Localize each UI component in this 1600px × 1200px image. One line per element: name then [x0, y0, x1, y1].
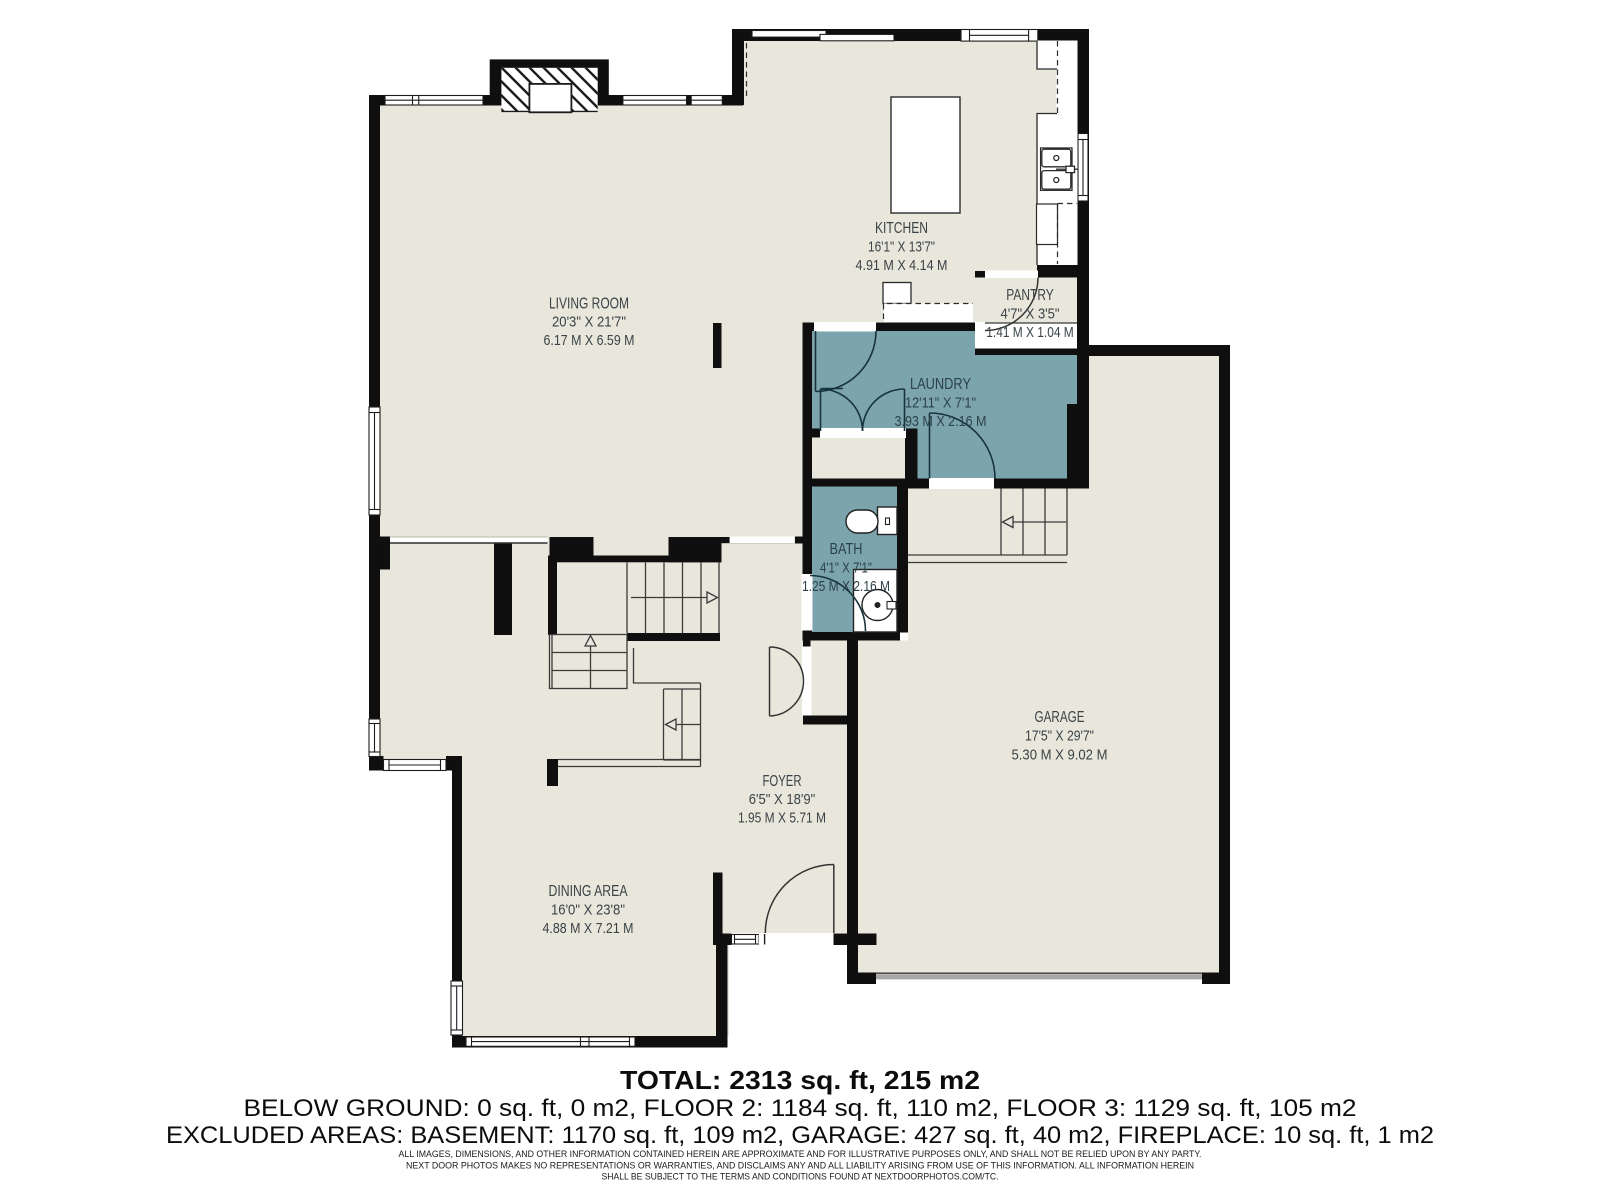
svg-text:TOTAL: 2313 sq. ft, 215 m2: TOTAL: 2313 sq. ft, 215 m2 — [620, 1065, 980, 1095]
svg-text:16'0" X 23'8": 16'0" X 23'8" — [551, 902, 625, 919]
svg-text:4.88 M X 7.21 M: 4.88 M X 7.21 M — [543, 920, 634, 937]
svg-text:GARAGE: GARAGE — [1035, 709, 1085, 726]
svg-text:FOYER: FOYER — [763, 773, 802, 790]
svg-text:4'7" X 3'5": 4'7" X 3'5" — [1001, 306, 1060, 323]
svg-text:1.41 M X 1.04 M: 1.41 M X 1.04 M — [986, 324, 1074, 341]
svg-text:17'5" X 29'7": 17'5" X 29'7" — [1025, 728, 1094, 745]
svg-text:BELOW GROUND: 0 sq. ft, 0 m2,: BELOW GROUND: 0 sq. ft, 0 m2, FLOOR 2: 1… — [244, 1095, 1357, 1122]
svg-text:5.30 M X 9.02 M: 5.30 M X 9.02 M — [1012, 747, 1108, 764]
svg-text:LAUNDRY: LAUNDRY — [910, 376, 971, 393]
svg-text:4.91 M X 4.14 M: 4.91 M X 4.14 M — [856, 257, 948, 274]
svg-text:BATH: BATH — [830, 541, 863, 558]
svg-text:3.93 M X 2.16 M: 3.93 M X 2.16 M — [895, 413, 987, 430]
svg-text:4'1" X 7'1": 4'1" X 7'1" — [820, 560, 872, 577]
svg-text:NEXT DOOR PHOTOS MAKES NO REPR: NEXT DOOR PHOTOS MAKES NO REPRESENTATION… — [406, 1161, 1194, 1171]
svg-text:ALL IMAGES, DIMENSIONS, AND OT: ALL IMAGES, DIMENSIONS, AND OTHER INFORM… — [399, 1149, 1202, 1159]
svg-text:6'5" X 18'9": 6'5" X 18'9" — [749, 791, 816, 808]
svg-text:20'3" X 21'7": 20'3" X 21'7" — [552, 314, 626, 331]
svg-text:KITCHEN: KITCHEN — [875, 220, 928, 237]
svg-text:1.95 M X 5.71 M: 1.95 M X 5.71 M — [738, 810, 826, 827]
svg-text:DINING AREA: DINING AREA — [549, 883, 628, 900]
svg-text:12'11" X 7'1": 12'11" X 7'1" — [905, 395, 976, 412]
svg-text:PANTRY: PANTRY — [1006, 287, 1054, 304]
svg-text:6.17 M X 6.59 M: 6.17 M X 6.59 M — [544, 332, 635, 349]
svg-text:1.25 M X 2.16 M: 1.25 M X 2.16 M — [802, 578, 890, 595]
svg-text:EXCLUDED AREAS: BASEMENT: 1170: EXCLUDED AREAS: BASEMENT: 1170 sq. ft, 1… — [166, 1122, 1434, 1149]
svg-text:16'1" X 13'7": 16'1" X 13'7" — [868, 239, 935, 256]
svg-text:LIVING ROOM: LIVING ROOM — [549, 296, 629, 313]
svg-text:SHALL BE SUBJECT TO THE TERMS: SHALL BE SUBJECT TO THE TERMS AND CONDIT… — [602, 1172, 999, 1182]
